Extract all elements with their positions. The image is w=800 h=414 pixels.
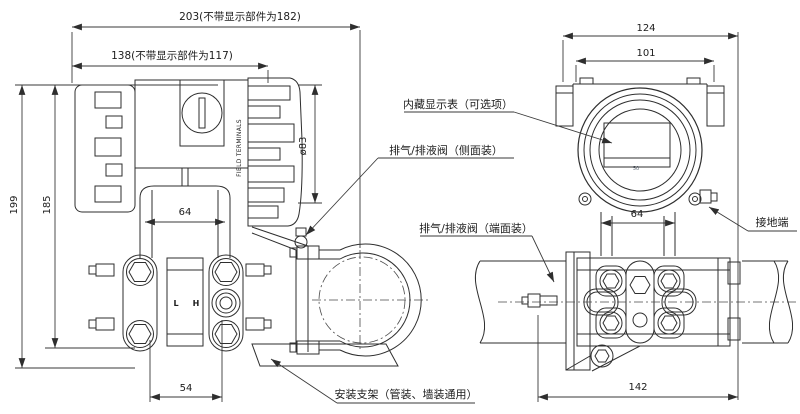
cover-lock — [579, 193, 591, 205]
dim-front-housing-width: 101 — [636, 48, 655, 59]
flange-left — [123, 255, 157, 351]
cover-fin — [95, 186, 121, 202]
cover-fin — [95, 92, 121, 108]
flange-bolt — [661, 274, 677, 288]
conduit-entry-left — [556, 86, 573, 126]
drawing-canvas: FIELD TERMINALS L H — [0, 0, 800, 414]
center-bolt — [630, 277, 650, 294]
dim-overall-height: 199 — [9, 195, 20, 214]
housing-body — [135, 80, 248, 168]
dim-cover-diameter: ø83 — [298, 137, 309, 156]
cover-fin — [248, 106, 280, 118]
conduit-block — [180, 80, 224, 146]
dim-neck-width-front: 64 — [631, 209, 644, 220]
knob-slot — [199, 98, 205, 128]
cover-fin — [106, 116, 122, 128]
dim-body-height: 185 — [42, 195, 53, 214]
callout-builtin-display: 内藏显示表（可选项） — [403, 97, 513, 111]
flange-bolt — [215, 263, 237, 282]
lcd-scale-label: 50 — [633, 166, 639, 172]
dim-total-length: 203(不带显示部件为182) — [179, 10, 301, 23]
end-vent-valve — [528, 294, 540, 307]
flange-right — [209, 255, 243, 351]
cover-lock — [689, 193, 701, 205]
callout-vent-side: 排气/排液阀（侧面装） — [389, 143, 503, 157]
adjust-knob — [182, 93, 222, 133]
high-side-label: H — [193, 299, 200, 308]
callout-ground-terminal: 接地端 — [756, 216, 789, 229]
callout-bracket: 安装支架（管装、墙装通用） — [335, 387, 478, 401]
flange-bolt — [129, 325, 151, 344]
ground-lug — [700, 190, 711, 203]
side-view: FIELD TERMINALS L H — [75, 78, 428, 366]
callouts: 内藏显示表（可选项） 排气/排液阀（侧面装） 排气/排液阀（端面装） 安装支架（… — [271, 97, 797, 403]
dimensions: 203(不带显示部件为182) 138(不带显示部件为117) 199 185 … — [9, 10, 738, 402]
low-side-label: L — [173, 299, 178, 308]
flange-bolt — [603, 316, 619, 330]
side-vent-valve — [296, 228, 306, 236]
dim-port-spacing: 54 — [180, 383, 193, 394]
dim-manifold-width: 142 — [628, 382, 647, 393]
side-bolt — [96, 264, 114, 276]
side-bolt — [246, 264, 264, 276]
flange-bolt — [129, 263, 151, 282]
cover-fin — [106, 164, 122, 176]
terminal-cover — [75, 85, 135, 212]
cover-fin — [248, 188, 284, 202]
cover-screw — [580, 78, 593, 84]
side-bolt — [246, 318, 264, 330]
dim-body-length: 138(不带显示部件为117) — [111, 49, 233, 62]
callout-vent-end: 排气/排液阀（端面装） — [419, 221, 533, 235]
pipe-break — [475, 261, 484, 343]
cover-fin — [248, 206, 278, 218]
cover-fin — [248, 148, 280, 160]
cover-screw — [687, 78, 700, 84]
dim-neck-width-side: 64 — [179, 207, 192, 218]
transmitter-dimension-drawing: FIELD TERMINALS L H — [0, 0, 800, 414]
cover-fin — [95, 138, 121, 156]
cover-fin — [248, 166, 294, 182]
drain-plug — [591, 345, 613, 367]
display-bezel — [578, 88, 702, 212]
field-terminals-label: FIELD TERMINALS — [236, 119, 243, 177]
cover-fin — [248, 124, 294, 142]
dim-front-overall-width: 124 — [636, 23, 655, 34]
flange-bolt — [215, 325, 237, 344]
lcd-window — [604, 123, 670, 167]
vent-pin — [182, 168, 188, 186]
conduit-entry-right — [707, 86, 724, 126]
side-bolt — [96, 318, 114, 330]
cover-fin — [248, 86, 290, 100]
flange-bolt — [661, 316, 677, 330]
flange-bolt — [603, 274, 619, 288]
